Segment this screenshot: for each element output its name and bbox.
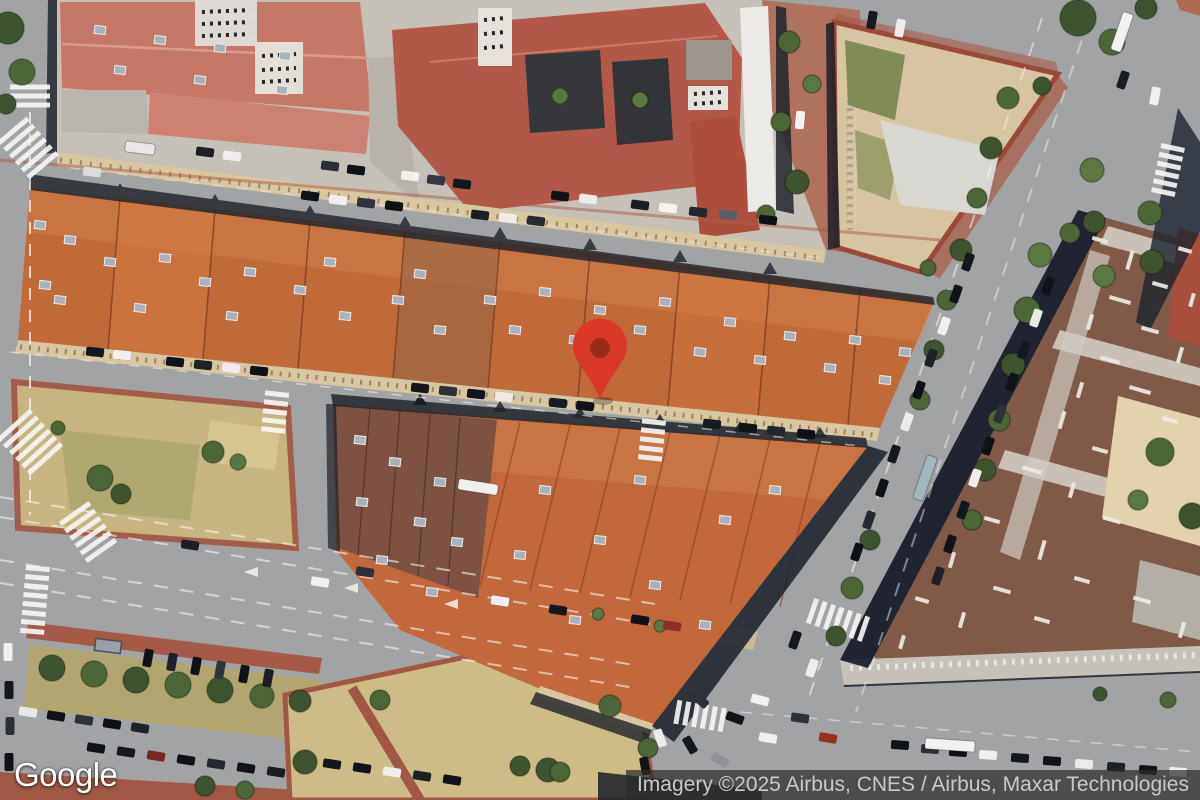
tree bbox=[1135, 0, 1157, 19]
tree bbox=[550, 762, 570, 782]
roof-skylight bbox=[244, 267, 256, 276]
roof-skylight bbox=[594, 535, 606, 544]
google-logo[interactable]: Google bbox=[14, 756, 117, 794]
roof-skylight bbox=[899, 347, 911, 356]
roof-skylight bbox=[159, 253, 171, 262]
tree bbox=[39, 655, 65, 681]
roof-skylight bbox=[194, 75, 206, 84]
roof-skylight bbox=[539, 287, 551, 296]
car bbox=[166, 357, 185, 368]
tree bbox=[111, 484, 131, 504]
tree bbox=[1028, 243, 1052, 267]
car bbox=[1043, 756, 1062, 766]
tree bbox=[293, 750, 317, 774]
roof-skylight bbox=[54, 295, 66, 304]
roof-skylight bbox=[569, 615, 581, 624]
tree bbox=[1033, 77, 1051, 95]
tree bbox=[638, 738, 658, 758]
tree bbox=[1140, 250, 1164, 274]
roof-skylight bbox=[699, 620, 711, 629]
tree bbox=[1080, 158, 1104, 182]
roof-skylight bbox=[134, 303, 146, 312]
roof-skylight bbox=[114, 65, 126, 74]
roof-skylight bbox=[634, 475, 646, 484]
car bbox=[113, 350, 132, 361]
roof-skylight bbox=[294, 285, 306, 294]
car bbox=[194, 360, 213, 371]
roof-skylight bbox=[276, 85, 288, 94]
tree bbox=[370, 690, 390, 710]
tree bbox=[997, 87, 1019, 109]
tree bbox=[1060, 223, 1080, 243]
car bbox=[576, 401, 595, 412]
bus-shelter bbox=[94, 638, 121, 653]
car bbox=[549, 398, 568, 409]
roof-skylight bbox=[539, 485, 551, 494]
car bbox=[1075, 759, 1094, 769]
car bbox=[795, 111, 806, 130]
roof-skylight bbox=[389, 457, 401, 466]
tree bbox=[230, 454, 246, 470]
car bbox=[5, 753, 14, 771]
car bbox=[411, 383, 430, 394]
tree bbox=[1083, 211, 1105, 233]
tree bbox=[785, 170, 809, 194]
car bbox=[703, 419, 722, 430]
tree bbox=[123, 667, 149, 693]
tree bbox=[841, 577, 863, 599]
tree bbox=[289, 690, 311, 712]
tree bbox=[207, 677, 233, 703]
tree bbox=[552, 88, 568, 104]
roof-skylight bbox=[414, 269, 426, 278]
roof-skylight bbox=[724, 317, 736, 326]
roof-skylight bbox=[279, 51, 291, 60]
tree bbox=[980, 137, 1002, 159]
roof-skylight bbox=[426, 587, 438, 596]
google-maps-satellite-view: Google Imagery ©2025 Airbus, CNES / Airb… bbox=[0, 0, 1200, 800]
tree bbox=[236, 781, 254, 799]
car bbox=[250, 366, 269, 377]
tree bbox=[51, 421, 65, 435]
tree bbox=[1146, 438, 1174, 466]
tree bbox=[1128, 490, 1148, 510]
tree bbox=[599, 695, 621, 717]
tree bbox=[1093, 687, 1107, 701]
roof-skylight bbox=[214, 43, 226, 52]
car bbox=[467, 389, 486, 400]
roof-skylight bbox=[451, 537, 463, 546]
roof-skylight bbox=[879, 375, 891, 384]
roof-skylight bbox=[509, 325, 521, 334]
roof-skylight bbox=[594, 305, 606, 314]
tree bbox=[826, 626, 846, 646]
car bbox=[739, 423, 758, 434]
car bbox=[5, 681, 14, 699]
roof-skylight bbox=[719, 515, 731, 524]
tree bbox=[592, 608, 604, 620]
attribution-text: Imagery ©2025 Airbus, CNES / Airbus, Max… bbox=[637, 773, 1189, 797]
roof-skylight bbox=[414, 517, 426, 526]
tree bbox=[1138, 201, 1162, 225]
roof-skylight bbox=[39, 280, 51, 289]
car bbox=[495, 392, 514, 403]
roof-skylight bbox=[356, 497, 368, 506]
tree bbox=[1093, 265, 1115, 287]
car bbox=[6, 717, 15, 735]
roof-skylight bbox=[694, 347, 706, 356]
roof-skylight bbox=[769, 485, 781, 494]
tree bbox=[632, 92, 648, 108]
tree bbox=[510, 756, 530, 776]
roof-skylight bbox=[34, 220, 46, 229]
tree bbox=[250, 684, 274, 708]
tree bbox=[967, 188, 987, 208]
tree bbox=[1060, 0, 1096, 36]
tree bbox=[87, 465, 113, 491]
roof-skylight bbox=[199, 277, 211, 286]
tree bbox=[202, 441, 224, 463]
tree bbox=[0, 94, 16, 114]
roof-skylight bbox=[659, 297, 671, 306]
roof-skylight bbox=[754, 355, 766, 364]
roof-skylight bbox=[634, 325, 646, 334]
tree bbox=[803, 75, 821, 93]
tree bbox=[920, 260, 936, 276]
satellite-map[interactable] bbox=[0, 0, 1200, 800]
roof-skylight bbox=[849, 335, 861, 344]
roof-skylight bbox=[824, 363, 836, 372]
car bbox=[979, 750, 998, 760]
car bbox=[439, 386, 458, 397]
car bbox=[222, 363, 241, 374]
roof-skylight bbox=[324, 257, 336, 266]
car bbox=[86, 347, 105, 358]
tree bbox=[1160, 692, 1176, 708]
roof-skylight bbox=[434, 477, 446, 486]
tree bbox=[9, 59, 35, 85]
pin-inner-circle bbox=[590, 338, 610, 358]
roof-skylight bbox=[94, 25, 106, 34]
car bbox=[4, 643, 13, 661]
roof-skylight bbox=[154, 35, 166, 44]
tree bbox=[0, 12, 24, 44]
roof-skylight bbox=[434, 325, 446, 334]
car bbox=[767, 426, 786, 437]
roof-skylight bbox=[392, 295, 404, 304]
roof-skylight bbox=[514, 550, 526, 559]
tree bbox=[195, 776, 215, 796]
pin-shadow bbox=[593, 397, 613, 405]
roof-skylight bbox=[104, 257, 116, 266]
roof-skylight bbox=[649, 580, 661, 589]
roof-skylight bbox=[64, 235, 76, 244]
tree bbox=[165, 672, 191, 698]
tree bbox=[81, 661, 107, 687]
roof-skylight bbox=[784, 331, 796, 340]
tree bbox=[778, 31, 800, 53]
roof-skylight bbox=[354, 435, 366, 444]
roof-skylight bbox=[339, 311, 351, 320]
car bbox=[891, 740, 910, 750]
roof-skylight bbox=[484, 295, 496, 304]
car bbox=[1011, 753, 1030, 763]
tree bbox=[771, 112, 791, 132]
attribution-bar: Imagery ©2025 Airbus, CNES / Airbus, Max… bbox=[626, 770, 1200, 800]
roof-skylight bbox=[226, 311, 238, 320]
tree bbox=[1179, 503, 1200, 529]
car bbox=[797, 429, 816, 440]
roof-skylight bbox=[376, 555, 388, 564]
